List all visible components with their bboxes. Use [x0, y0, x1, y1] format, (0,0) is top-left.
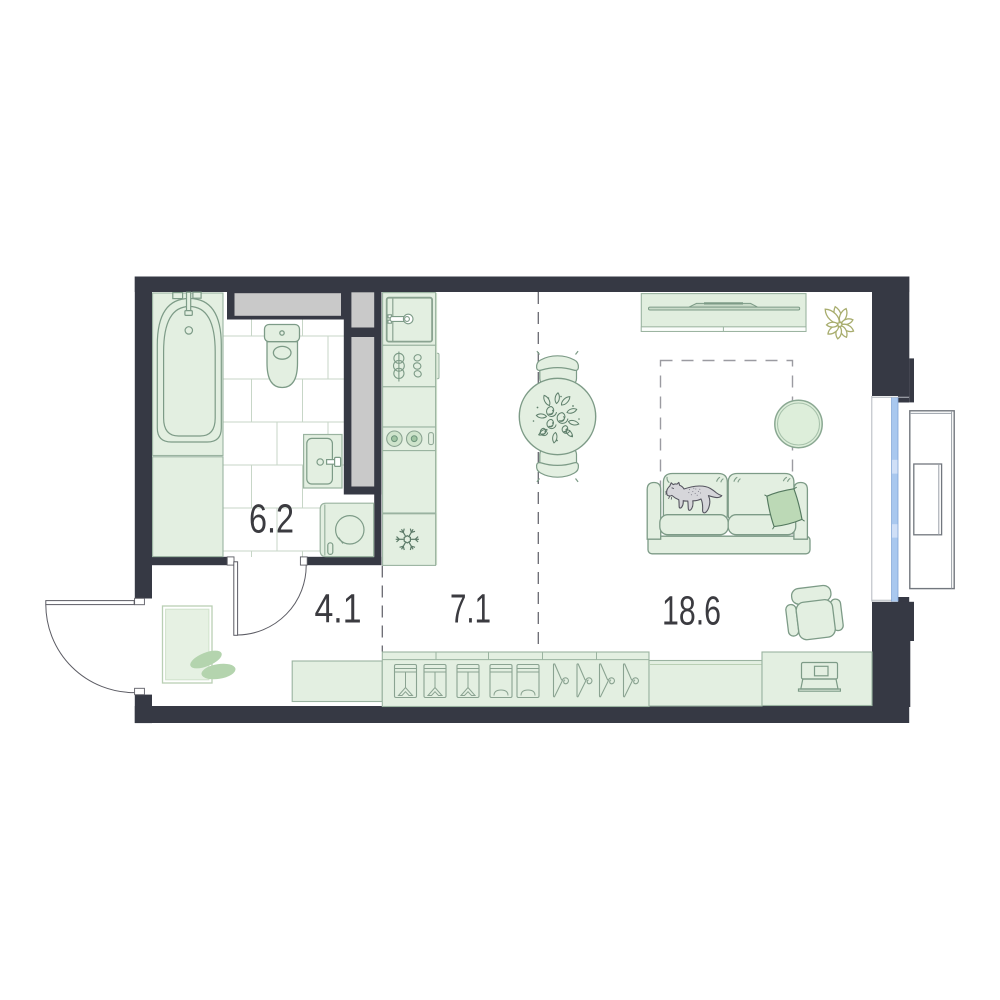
- svg-text:18.6: 18.6: [662, 588, 721, 634]
- svg-text:6.2: 6.2: [249, 496, 294, 542]
- svg-text:4.1: 4.1: [315, 586, 362, 632]
- svg-text:7.1: 7.1: [450, 586, 491, 632]
